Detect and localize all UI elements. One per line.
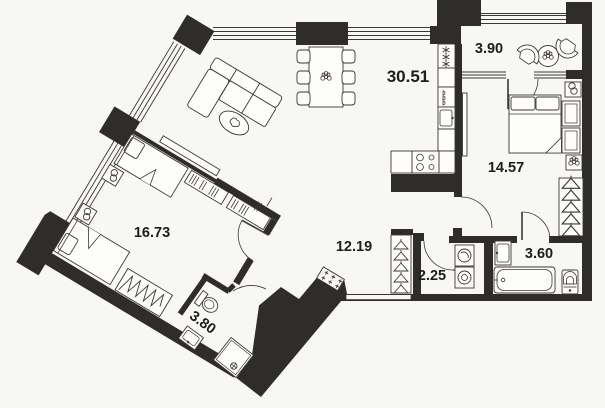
svg-text:30.51: 30.51	[387, 67, 430, 86]
svg-text:16.73: 16.73	[134, 225, 170, 241]
svg-text:14.57: 14.57	[488, 160, 524, 176]
svg-text:3.60: 3.60	[525, 246, 553, 262]
svg-text:2.25: 2.25	[418, 268, 446, 284]
svg-text:12.19: 12.19	[336, 239, 372, 255]
svg-text:3.90: 3.90	[475, 41, 503, 57]
